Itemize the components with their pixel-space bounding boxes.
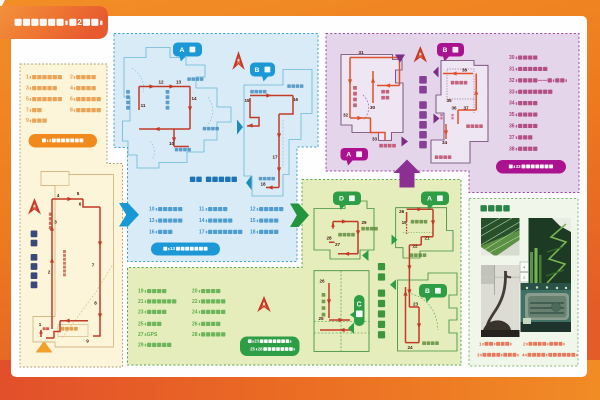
svg-text:30: 30 (509, 55, 515, 61)
svg-text:30: 30 (370, 105, 376, 110)
svg-text:1: 1 (26, 75, 29, 81)
svg-text:A: A (346, 152, 351, 159)
svg-text:B: B (255, 67, 260, 74)
svg-text:33: 33 (372, 137, 378, 142)
svg-text:33: 33 (516, 164, 522, 169)
svg-text:26: 26 (192, 321, 198, 327)
svg-text:3: 3 (54, 220, 57, 225)
svg-text:8: 8 (94, 301, 97, 306)
svg-text:7: 7 (26, 108, 29, 114)
svg-text:5: 5 (26, 97, 29, 103)
svg-text:A: A (427, 196, 432, 203)
svg-text:D: D (339, 196, 344, 203)
svg-text:21: 21 (138, 299, 144, 305)
svg-text:20: 20 (192, 289, 198, 295)
svg-text:4: 4 (70, 86, 73, 92)
svg-text:22: 22 (192, 299, 198, 305)
svg-text:A: A (180, 47, 185, 54)
svg-text:14: 14 (191, 96, 197, 101)
svg-text:3: 3 (26, 86, 29, 92)
svg-text:26: 26 (399, 209, 405, 214)
svg-text:6: 6 (79, 202, 82, 207)
svg-text:9: 9 (26, 118, 29, 124)
svg-text:29: 29 (361, 220, 367, 225)
svg-text:37: 37 (463, 106, 469, 111)
svg-text:14: 14 (199, 218, 205, 224)
svg-text:4: 4 (57, 193, 60, 198)
svg-text:38: 38 (462, 68, 468, 73)
svg-text:32: 32 (343, 113, 349, 118)
svg-text:1: 1 (39, 322, 42, 327)
svg-text:3: 3 (477, 352, 480, 357)
svg-text:13: 13 (176, 80, 182, 85)
svg-text:B: B (425, 288, 430, 295)
svg-text:17: 17 (272, 155, 278, 160)
svg-text:19: 19 (402, 220, 408, 225)
svg-text:25: 25 (318, 316, 324, 321)
svg-text:11: 11 (141, 103, 146, 108)
svg-text:2: 2 (77, 17, 82, 27)
svg-text:24: 24 (192, 309, 198, 315)
svg-text:GPS: GPS (147, 332, 158, 338)
svg-text:36: 36 (509, 124, 515, 130)
svg-text:2: 2 (70, 75, 73, 81)
svg-text:10: 10 (169, 141, 175, 146)
svg-text:31: 31 (509, 67, 515, 73)
svg-text:22: 22 (412, 244, 418, 249)
svg-text:2: 2 (523, 341, 526, 346)
svg-text:23: 23 (254, 339, 259, 344)
svg-text:3: 3 (49, 138, 52, 143)
svg-text:25: 25 (250, 346, 255, 351)
svg-text:19: 19 (138, 289, 144, 295)
svg-text:B: B (443, 47, 448, 54)
svg-text:32: 32 (509, 78, 515, 84)
svg-text:23: 23 (138, 309, 144, 315)
svg-text:5: 5 (77, 191, 80, 196)
svg-text:16: 16 (149, 229, 155, 235)
svg-text:38: 38 (509, 146, 515, 152)
svg-text:10: 10 (149, 207, 155, 213)
svg-text:8: 8 (70, 108, 73, 114)
svg-text:27: 27 (335, 242, 341, 247)
svg-text:16: 16 (293, 97, 299, 102)
svg-text:29: 29 (138, 342, 144, 348)
svg-text:15: 15 (244, 98, 250, 103)
svg-text:35: 35 (446, 98, 452, 103)
svg-text:7: 7 (92, 263, 95, 268)
svg-text:9: 9 (86, 339, 89, 344)
svg-text:24: 24 (407, 345, 413, 350)
svg-text:12: 12 (158, 80, 164, 85)
svg-text:35: 35 (509, 112, 515, 118)
svg-text:31: 31 (358, 50, 364, 55)
svg-text:2: 2 (48, 270, 51, 275)
svg-text:18: 18 (250, 229, 256, 235)
svg-text:12: 12 (250, 207, 256, 213)
svg-text:23: 23 (413, 302, 419, 307)
svg-text:21: 21 (424, 236, 430, 241)
svg-text:18: 18 (260, 182, 266, 187)
svg-text:28: 28 (192, 332, 198, 338)
svg-text:17: 17 (199, 229, 205, 235)
svg-text:28: 28 (326, 236, 332, 241)
svg-text:13: 13 (149, 218, 155, 224)
svg-text:37: 37 (509, 135, 515, 141)
svg-text:27: 27 (138, 332, 144, 338)
svg-text:36: 36 (451, 106, 457, 111)
svg-text:1: 1 (479, 341, 482, 346)
svg-text:33: 33 (509, 89, 515, 95)
svg-text:34: 34 (509, 101, 515, 107)
svg-text:4: 4 (522, 352, 525, 357)
svg-text:25: 25 (138, 321, 144, 327)
svg-text:15: 15 (250, 218, 256, 224)
svg-text:34: 34 (442, 140, 448, 145)
svg-text:28: 28 (258, 346, 263, 351)
svg-text:C: C (357, 302, 362, 309)
svg-text:26: 26 (319, 279, 325, 284)
svg-text:6: 6 (70, 97, 73, 103)
svg-text:11: 11 (199, 207, 205, 213)
svg-text:13: 13 (170, 246, 176, 251)
